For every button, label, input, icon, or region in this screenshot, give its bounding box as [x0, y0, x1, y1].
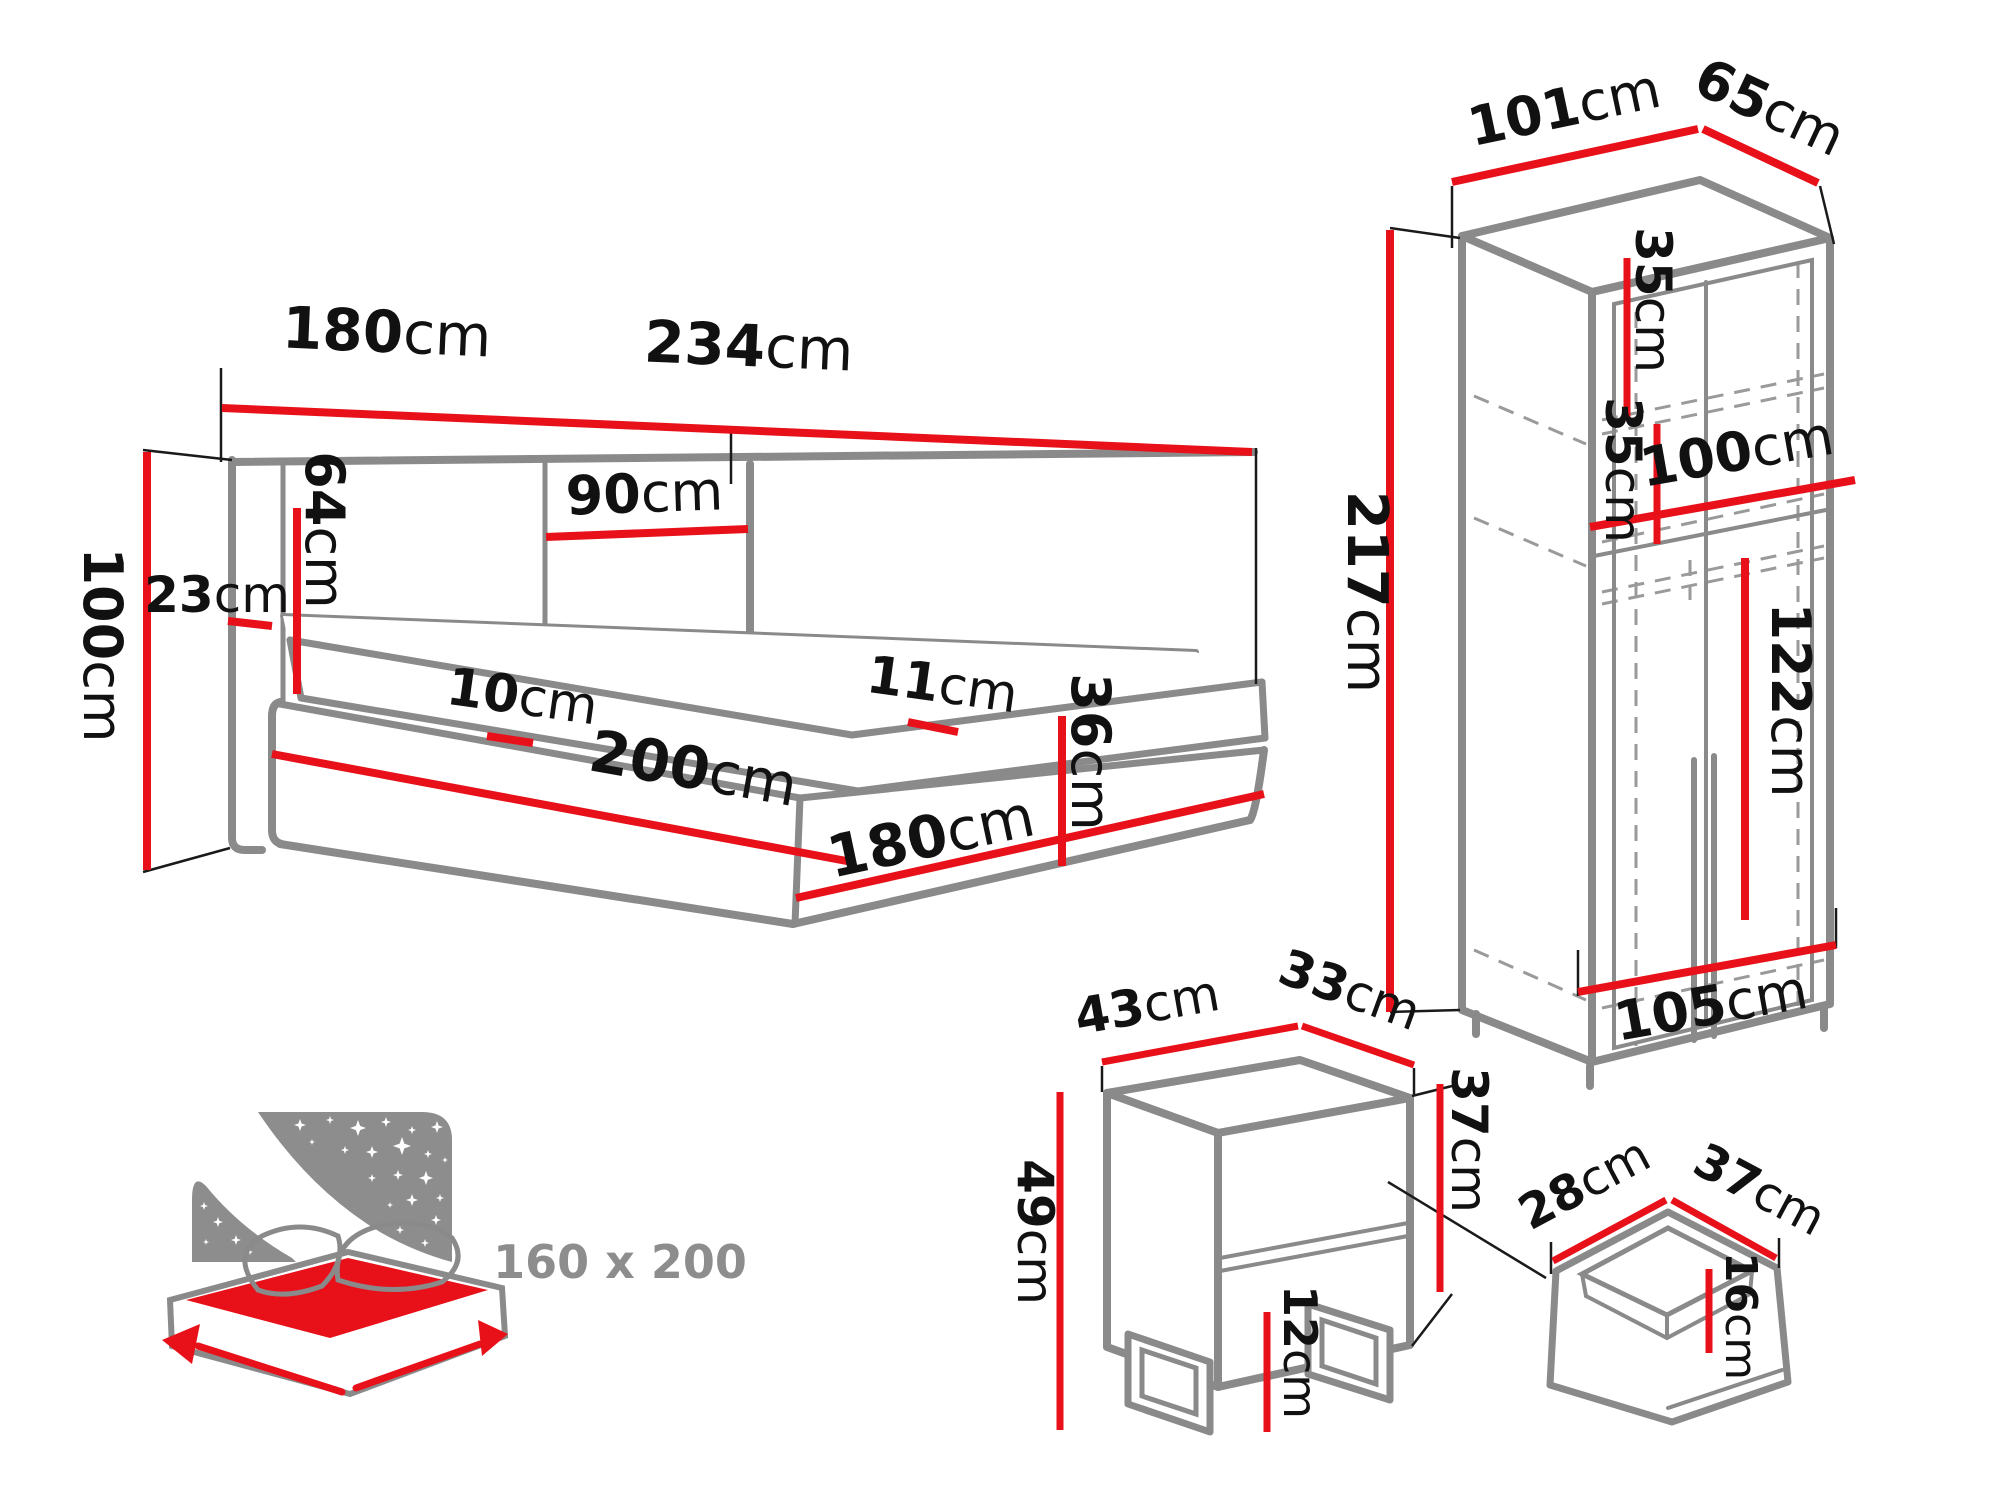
bed-headboard-width-label: 180cm [281, 293, 493, 370]
icon-arrow-length-shaft [356, 1344, 480, 1388]
wardrobe-top-depth-label: 65cm [1685, 45, 1854, 169]
bed-base-height-label: 36cm [1059, 673, 1122, 830]
diagram-canvas: 180cm 234cm 90cm 64cm 23cm 100cm 10cm 20… [0, 0, 2000, 1500]
nightstand-ext-body-bottom [1412, 1294, 1452, 1346]
bed-size-icon: 160 x 200 [162, 1112, 747, 1394]
bed-side-wing-label: 23cm [144, 566, 290, 624]
drawer-width-label: 28cm [1510, 1126, 1660, 1241]
bed-mattress-right-edge [1262, 682, 1265, 738]
drawer-height-label: 16cm [1715, 1252, 1766, 1380]
bed-headboard-left-edge [232, 460, 262, 850]
nightstand-leg-height-label: 12cm [1273, 1285, 1327, 1419]
bed-headboard-panel-label: 90cm [565, 459, 725, 527]
bed-base-corner-edge [795, 798, 800, 924]
bed-ext-line-height-top [143, 450, 232, 460]
wardrobe-shelf-gap-1-label: 35cm [1624, 227, 1682, 373]
icon-arrow-width-shaft [198, 1346, 342, 1392]
bed-dim-line-top [222, 408, 1252, 452]
wardrobe-left-face [1462, 236, 1592, 1062]
icon-size-label: 160 x 200 [493, 1235, 747, 1289]
bed-headboard-top-edge [232, 452, 1254, 462]
bed-total-length-label: 234cm [643, 307, 855, 384]
wardrobe-diagram: 101cm 65cm 35cm 35cm 100cm 217cm 122cm 1… [1334, 45, 1855, 1086]
bed-dim-line-panel [546, 529, 748, 537]
nightstand-total-height-label: 49cm [1006, 1159, 1064, 1305]
bed-height-label: 100cm [71, 547, 134, 742]
nightstand-width-label: 43cm [1070, 964, 1224, 1046]
wardrobe-hanging-height-label: 122cm [1759, 602, 1822, 797]
furniture-dimensions-diagram: 180cm 234cm 90cm 64cm 23cm 100cm 10cm 20… [0, 0, 2000, 1500]
bed-diagram: 180cm 234cm 90cm 64cm 23cm 100cm 10cm 20… [71, 293, 1266, 925]
icon-arrow-width-head [162, 1324, 200, 1364]
icon-headboard-small [192, 1181, 296, 1262]
bed-headboard-height-label: 64cm [293, 451, 356, 608]
bed-ext-line-height-bottom [143, 848, 230, 872]
drawer-diagram: 28cm 37cm 16cm [1510, 1126, 1835, 1422]
wardrobe-height-label: 217cm [1334, 491, 1399, 693]
wardrobe-ext-height-top [1390, 228, 1460, 238]
nightstand-body-height-label: 37cm [1440, 1067, 1498, 1213]
